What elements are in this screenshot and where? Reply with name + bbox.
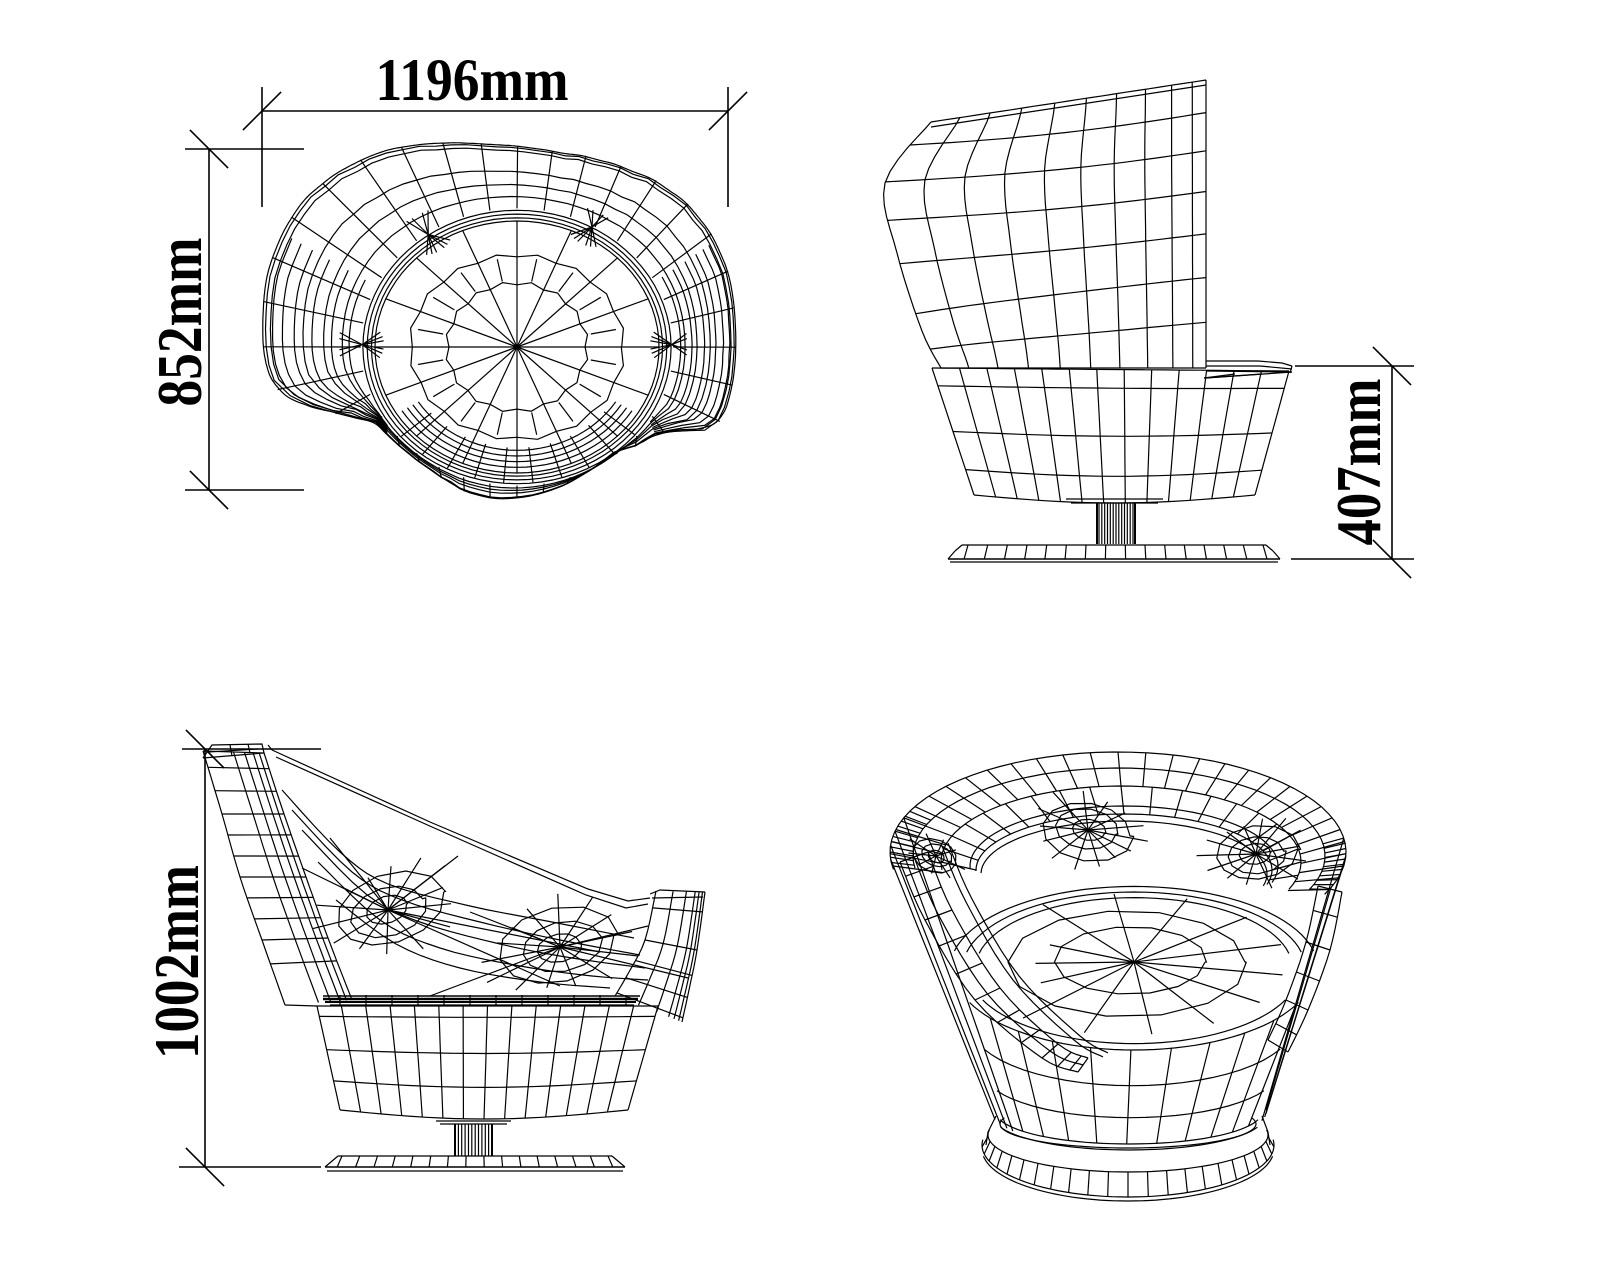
svg-text:1002mm: 1002mm [141,865,212,1059]
svg-text:1196mm: 1196mm [376,47,569,113]
svg-text:852mm: 852mm [144,238,215,407]
svg-text:407mm: 407mm [1323,379,1394,546]
